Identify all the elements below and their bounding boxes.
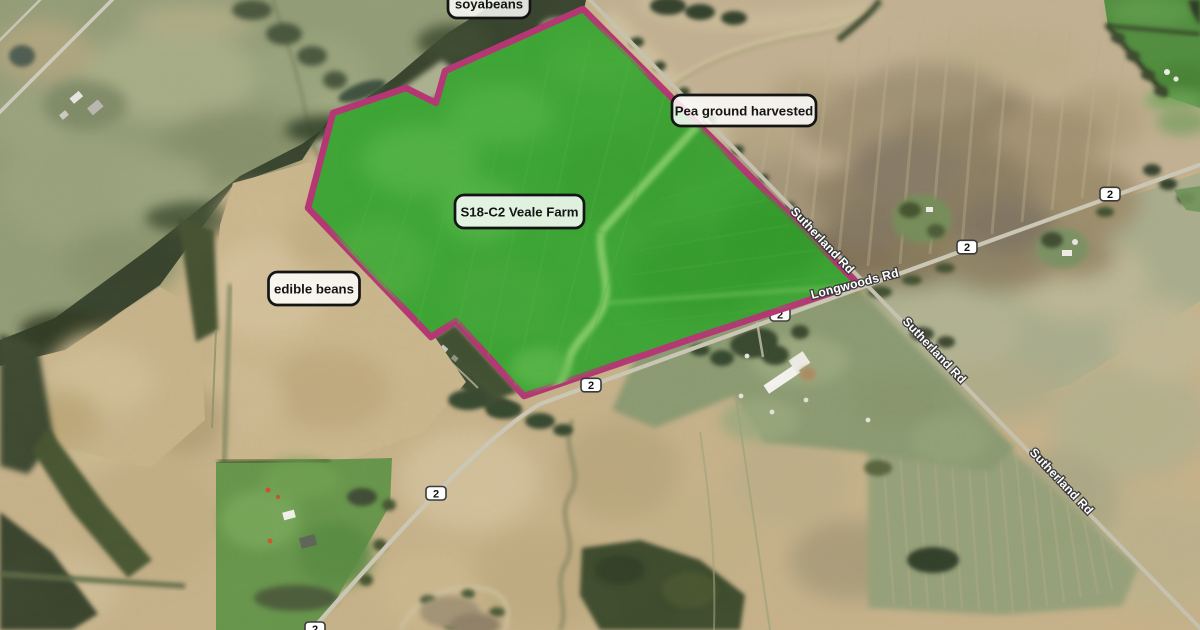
svg-text:2: 2 <box>588 380 594 392</box>
svg-text:2: 2 <box>312 624 318 630</box>
svg-text:2: 2 <box>433 488 439 500</box>
svg-text:2: 2 <box>1107 189 1113 201</box>
svg-text:S18-C2 Veale Farm: S18-C2 Veale Farm <box>460 205 578 220</box>
svg-text:2: 2 <box>964 242 970 254</box>
svg-text:edible beans: edible beans <box>274 282 354 297</box>
svg-text:Pea ground harvested: Pea ground harvested <box>675 104 814 119</box>
svg-text:soyabeans: soyabeans <box>455 0 523 12</box>
